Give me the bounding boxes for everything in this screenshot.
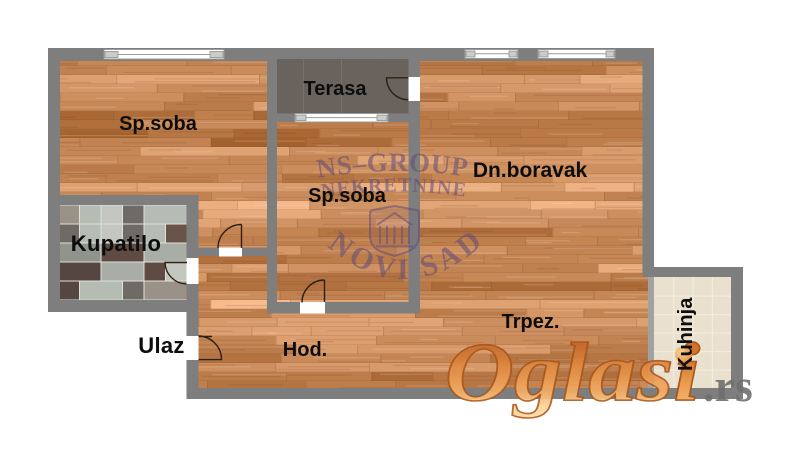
svg-text:Sp.soba: Sp.soba <box>308 185 387 207</box>
svg-text:Hod.: Hod. <box>283 339 327 361</box>
svg-text:.rs: .rs <box>703 360 753 411</box>
svg-text:Oglasi: Oglasi <box>445 326 700 419</box>
svg-text:Terasa: Terasa <box>303 78 367 100</box>
svg-text:Dn.boravak: Dn.boravak <box>473 159 588 182</box>
svg-text:Kupatilo: Kupatilo <box>71 231 161 256</box>
svg-text:Trpez.: Trpez. <box>502 311 560 333</box>
svg-text:Ulaz: Ulaz <box>138 333 184 358</box>
svg-text:Sp.soba: Sp.soba <box>119 113 198 135</box>
svg-text:Kuhinja: Kuhinja <box>675 297 697 371</box>
